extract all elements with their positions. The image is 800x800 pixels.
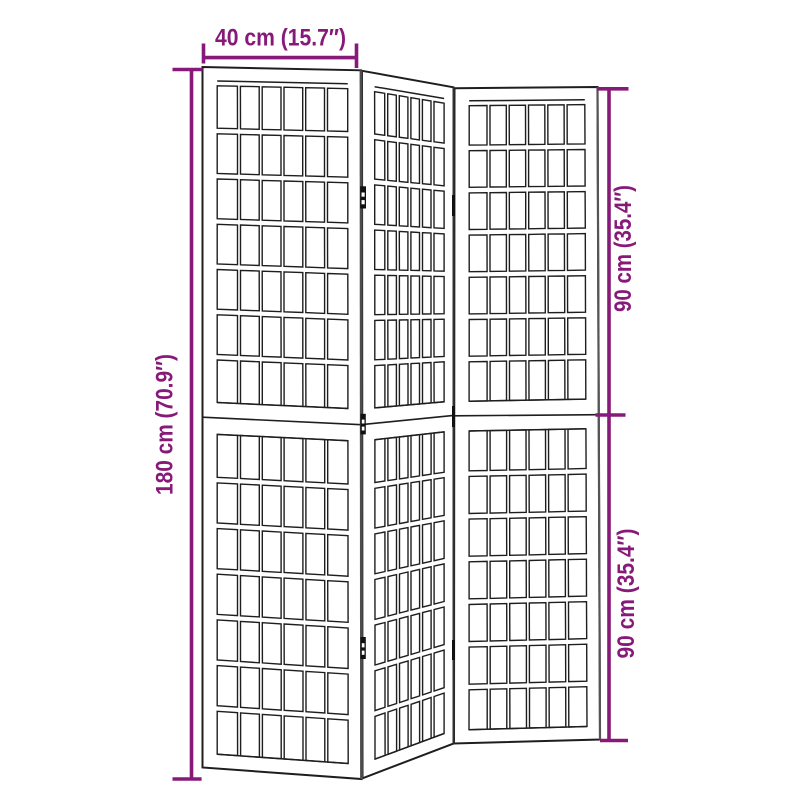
svg-text:40 cm (15.7″): 40 cm (15.7″) [215, 25, 346, 52]
svg-text:90 cm (35.4″): 90 cm (35.4″) [613, 529, 640, 659]
svg-text:180 cm (70.9″): 180 cm (70.9″) [152, 354, 179, 495]
svg-text:90 cm (35.4″): 90 cm (35.4″) [610, 185, 637, 312]
